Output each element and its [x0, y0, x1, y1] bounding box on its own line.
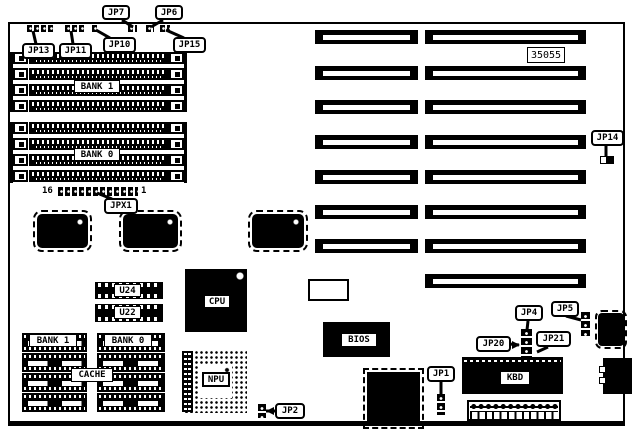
- simm-bank0-text: BANK 0: [81, 150, 114, 160]
- simm-end: [169, 154, 184, 166]
- simm-bank0-label: BANK 0: [74, 148, 120, 161]
- simm-bank1-text: BANK 1: [81, 82, 114, 92]
- isa-slot-short: [315, 30, 418, 44]
- callout-jp7-label: JP7: [108, 8, 124, 18]
- qfp-chip: [367, 372, 420, 425]
- kbd-label: KBD: [500, 371, 530, 385]
- simm-bank1-label: BANK 1: [74, 80, 120, 93]
- plcc-chip: [123, 214, 178, 248]
- simm-end: [169, 122, 184, 134]
- callout-jp2-label: JP2: [282, 406, 298, 416]
- callout-jp5-label: JP5: [557, 304, 573, 314]
- jpx1-pin1-label: 1: [141, 186, 146, 196]
- callout-jp15-label: JP15: [179, 40, 201, 50]
- callout-jp7: JP7: [102, 5, 130, 20]
- simm-end: [13, 170, 28, 182]
- simm-end: [169, 138, 184, 150]
- power-connector-tab: [599, 377, 606, 384]
- isa-slot-long: [425, 274, 586, 288]
- cache-bank1-text: BANK 1: [37, 336, 70, 346]
- simm-end: [169, 84, 184, 96]
- callout-jp21-label: JP21: [543, 334, 565, 344]
- u22-text: U22: [119, 308, 135, 318]
- isa-slot-short: [315, 66, 418, 80]
- cache-text: CACHE: [78, 370, 105, 380]
- u22-label: U22: [114, 306, 141, 319]
- jumper-block-jp5: [581, 312, 590, 336]
- jumper-block-jp13: [27, 25, 53, 32]
- bank1-right-rail: [184, 52, 187, 112]
- callout-jp11: JP11: [59, 43, 92, 59]
- isa-slot-short: [315, 170, 418, 184]
- callout-jp10: JP10: [103, 37, 136, 53]
- simm-end: [13, 84, 28, 96]
- callout-jp15: JP15: [173, 37, 206, 53]
- isa-slot-short: [315, 239, 418, 253]
- callout-jp13: JP13: [22, 43, 55, 59]
- kbd-text: KBD: [507, 373, 523, 383]
- pin-row-squares: [470, 411, 558, 420]
- isa-slot-short: [315, 135, 418, 149]
- callout-jpx1-label: JPX1: [110, 201, 132, 211]
- jumper-block-jp4-jp20-jp21: [521, 329, 532, 357]
- isa-slot-long: [425, 239, 586, 253]
- simm-end: [13, 138, 28, 150]
- callout-jp6-label: JP6: [161, 8, 177, 18]
- jumper-block-jp10: [92, 25, 98, 32]
- npu-label: NPU: [202, 372, 230, 387]
- simm-socket: [29, 68, 170, 80]
- callout-jp14-label: JP14: [597, 133, 619, 143]
- part-number-text: 35055: [531, 50, 561, 61]
- jpx1-header: [58, 187, 138, 196]
- cpu-text: CPU: [209, 297, 225, 307]
- isa-slot-long: [425, 66, 586, 80]
- power-pin-strip: [467, 400, 561, 421]
- u24-text: U24: [119, 286, 135, 296]
- simm-socket: [29, 170, 170, 182]
- isa-slot-long: [425, 170, 586, 184]
- cache-bank1-label: BANK 1: [29, 334, 77, 347]
- callout-jp2: JP2: [275, 403, 305, 419]
- callout-jp5: JP5: [551, 301, 579, 317]
- simm-socket: [29, 122, 170, 134]
- keyboard-din-connector: [598, 313, 624, 346]
- isa-slot-long: [425, 100, 586, 114]
- callout-jpx1: JPX1: [104, 198, 138, 214]
- jpx1-pin16-label: 16: [42, 186, 53, 196]
- simm-socket: [29, 100, 170, 112]
- callout-jp4-label: JP4: [521, 308, 537, 318]
- jumper-block-jp1: [437, 394, 445, 415]
- callout-jp21: JP21: [536, 331, 571, 347]
- cache-bank0-text: BANK 0: [112, 336, 145, 346]
- plcc-chip: [252, 214, 304, 248]
- jumper-block-jp14: [600, 156, 614, 164]
- isa-slot-long: [425, 205, 586, 219]
- callout-jp4: JP4: [515, 305, 543, 321]
- simm-end: [169, 68, 184, 80]
- cache-chip: [97, 393, 165, 412]
- jumper-block-jp2: [258, 404, 266, 418]
- callout-jp1-label: JP1: [433, 369, 449, 379]
- callout-jp1: JP1: [427, 366, 455, 382]
- simm-end: [13, 100, 28, 112]
- callout-jp20-label: JP20: [483, 339, 505, 349]
- jumper-block-jp15: [160, 25, 170, 32]
- simm-end: [169, 100, 184, 112]
- vertical-header: [182, 351, 193, 412]
- callout-jp10-label: JP10: [109, 40, 131, 50]
- simm-end: [169, 52, 184, 64]
- cache-bank0-label: BANK 0: [104, 334, 152, 347]
- motherboard-diagram: JP7 JP6 JP13 JP11 JP10 JP15 JPX1 JP14 JP…: [0, 0, 632, 436]
- bios-text: BIOS: [348, 335, 370, 345]
- jumper-block-jp11: [65, 25, 85, 32]
- u24-label: U24: [114, 284, 141, 297]
- power-connector-tab: [599, 366, 606, 373]
- part-number-label: 35055: [527, 47, 565, 63]
- simm-end: [13, 122, 28, 134]
- empty-socket: [308, 279, 349, 301]
- callout-jp14: JP14: [591, 130, 624, 146]
- simm-end: [13, 154, 28, 166]
- callout-jp6: JP6: [155, 5, 183, 20]
- callout-jp11-label: JP11: [65, 46, 87, 56]
- cpu-label: CPU: [204, 295, 230, 308]
- power-connector: [603, 358, 632, 394]
- simm-end: [13, 68, 28, 80]
- simm-end: [169, 170, 184, 182]
- callout-jp13-label: JP13: [28, 46, 50, 56]
- isa-slot-short: [315, 100, 418, 114]
- plcc-chip: [37, 214, 88, 248]
- callout-jp20: JP20: [476, 336, 511, 352]
- jumper-block-jp6: [146, 25, 154, 32]
- pin-row-circles: [470, 402, 558, 411]
- isa-slot-long: [425, 30, 586, 44]
- cache-chip: [22, 393, 87, 412]
- jumper-block-jp7: [128, 25, 137, 32]
- isa-slot-short: [315, 205, 418, 219]
- isa-slot-long: [425, 135, 586, 149]
- bios-label: BIOS: [341, 333, 377, 347]
- cache-label: CACHE: [71, 368, 113, 382]
- bank0-right-rail: [184, 122, 187, 183]
- npu-text: NPU: [208, 375, 224, 385]
